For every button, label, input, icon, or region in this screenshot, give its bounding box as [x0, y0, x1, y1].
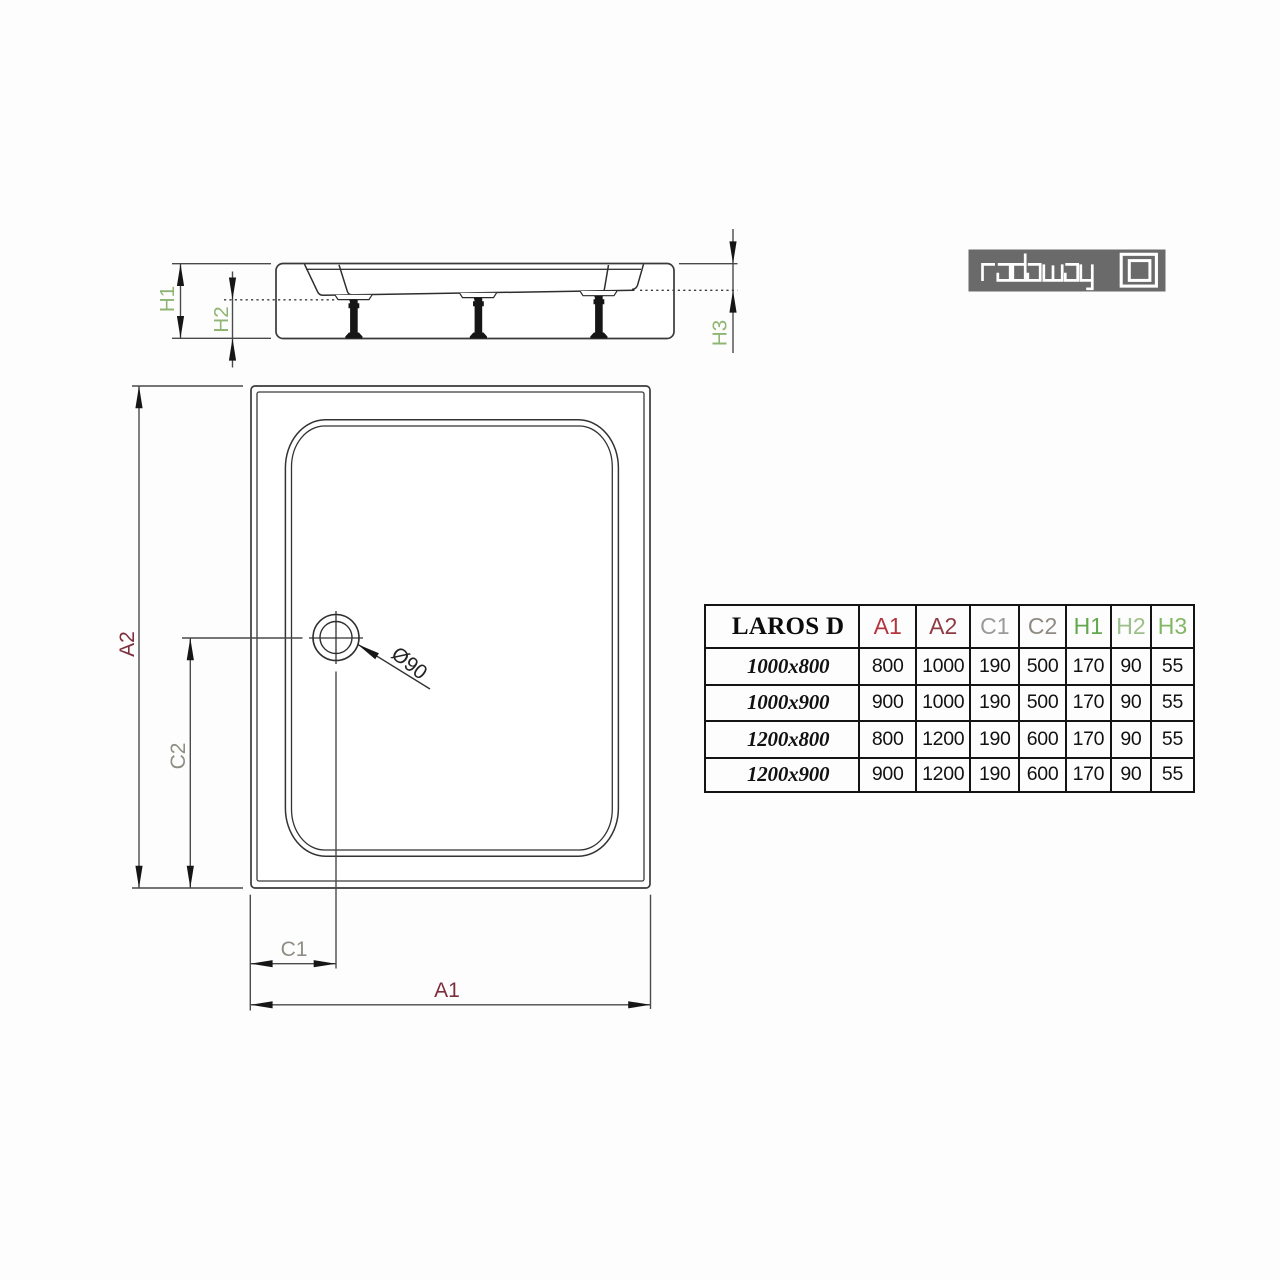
svg-text:H2: H2	[210, 306, 233, 332]
svg-text:C1: C1	[281, 938, 308, 961]
svg-text:H3: H3	[708, 320, 731, 346]
svg-text:A1: A1	[434, 979, 460, 1002]
svg-text:C2: C2	[167, 743, 190, 770]
svg-text:H1: H1	[156, 286, 179, 312]
svg-text:A2: A2	[116, 631, 139, 657]
